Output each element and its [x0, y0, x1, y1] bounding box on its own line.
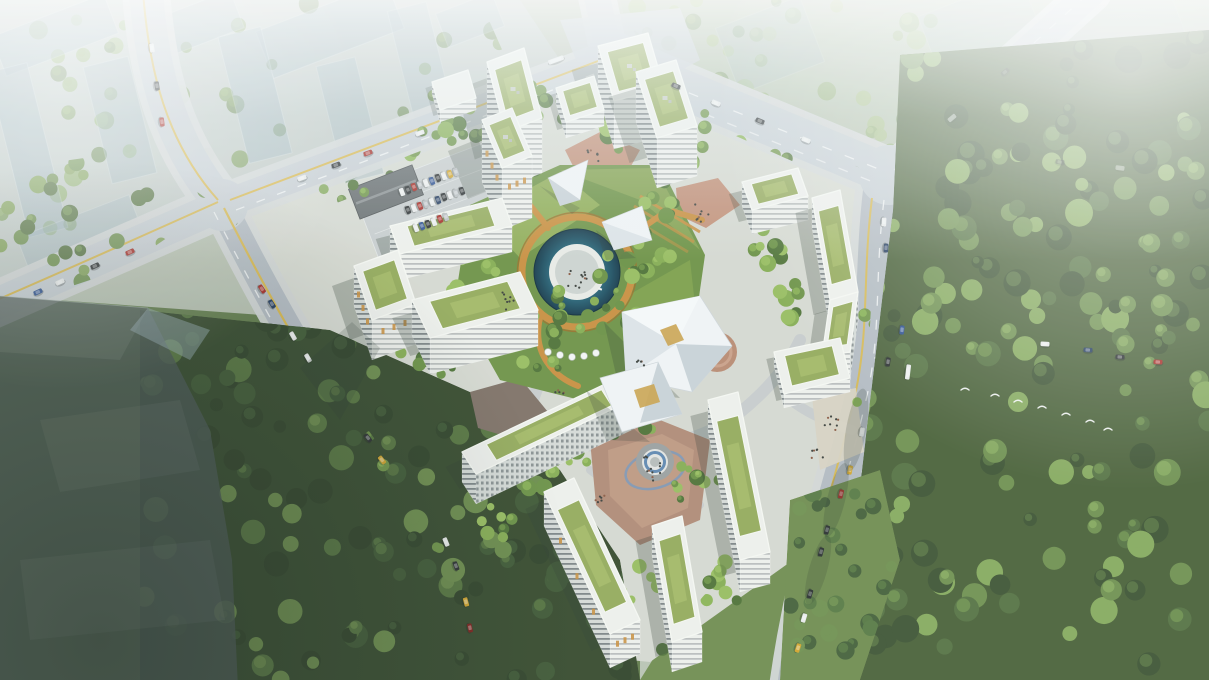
atmosphere — [0, 0, 1209, 680]
render-canvas — [0, 0, 1209, 680]
aerial-render-stage — [0, 0, 1209, 680]
